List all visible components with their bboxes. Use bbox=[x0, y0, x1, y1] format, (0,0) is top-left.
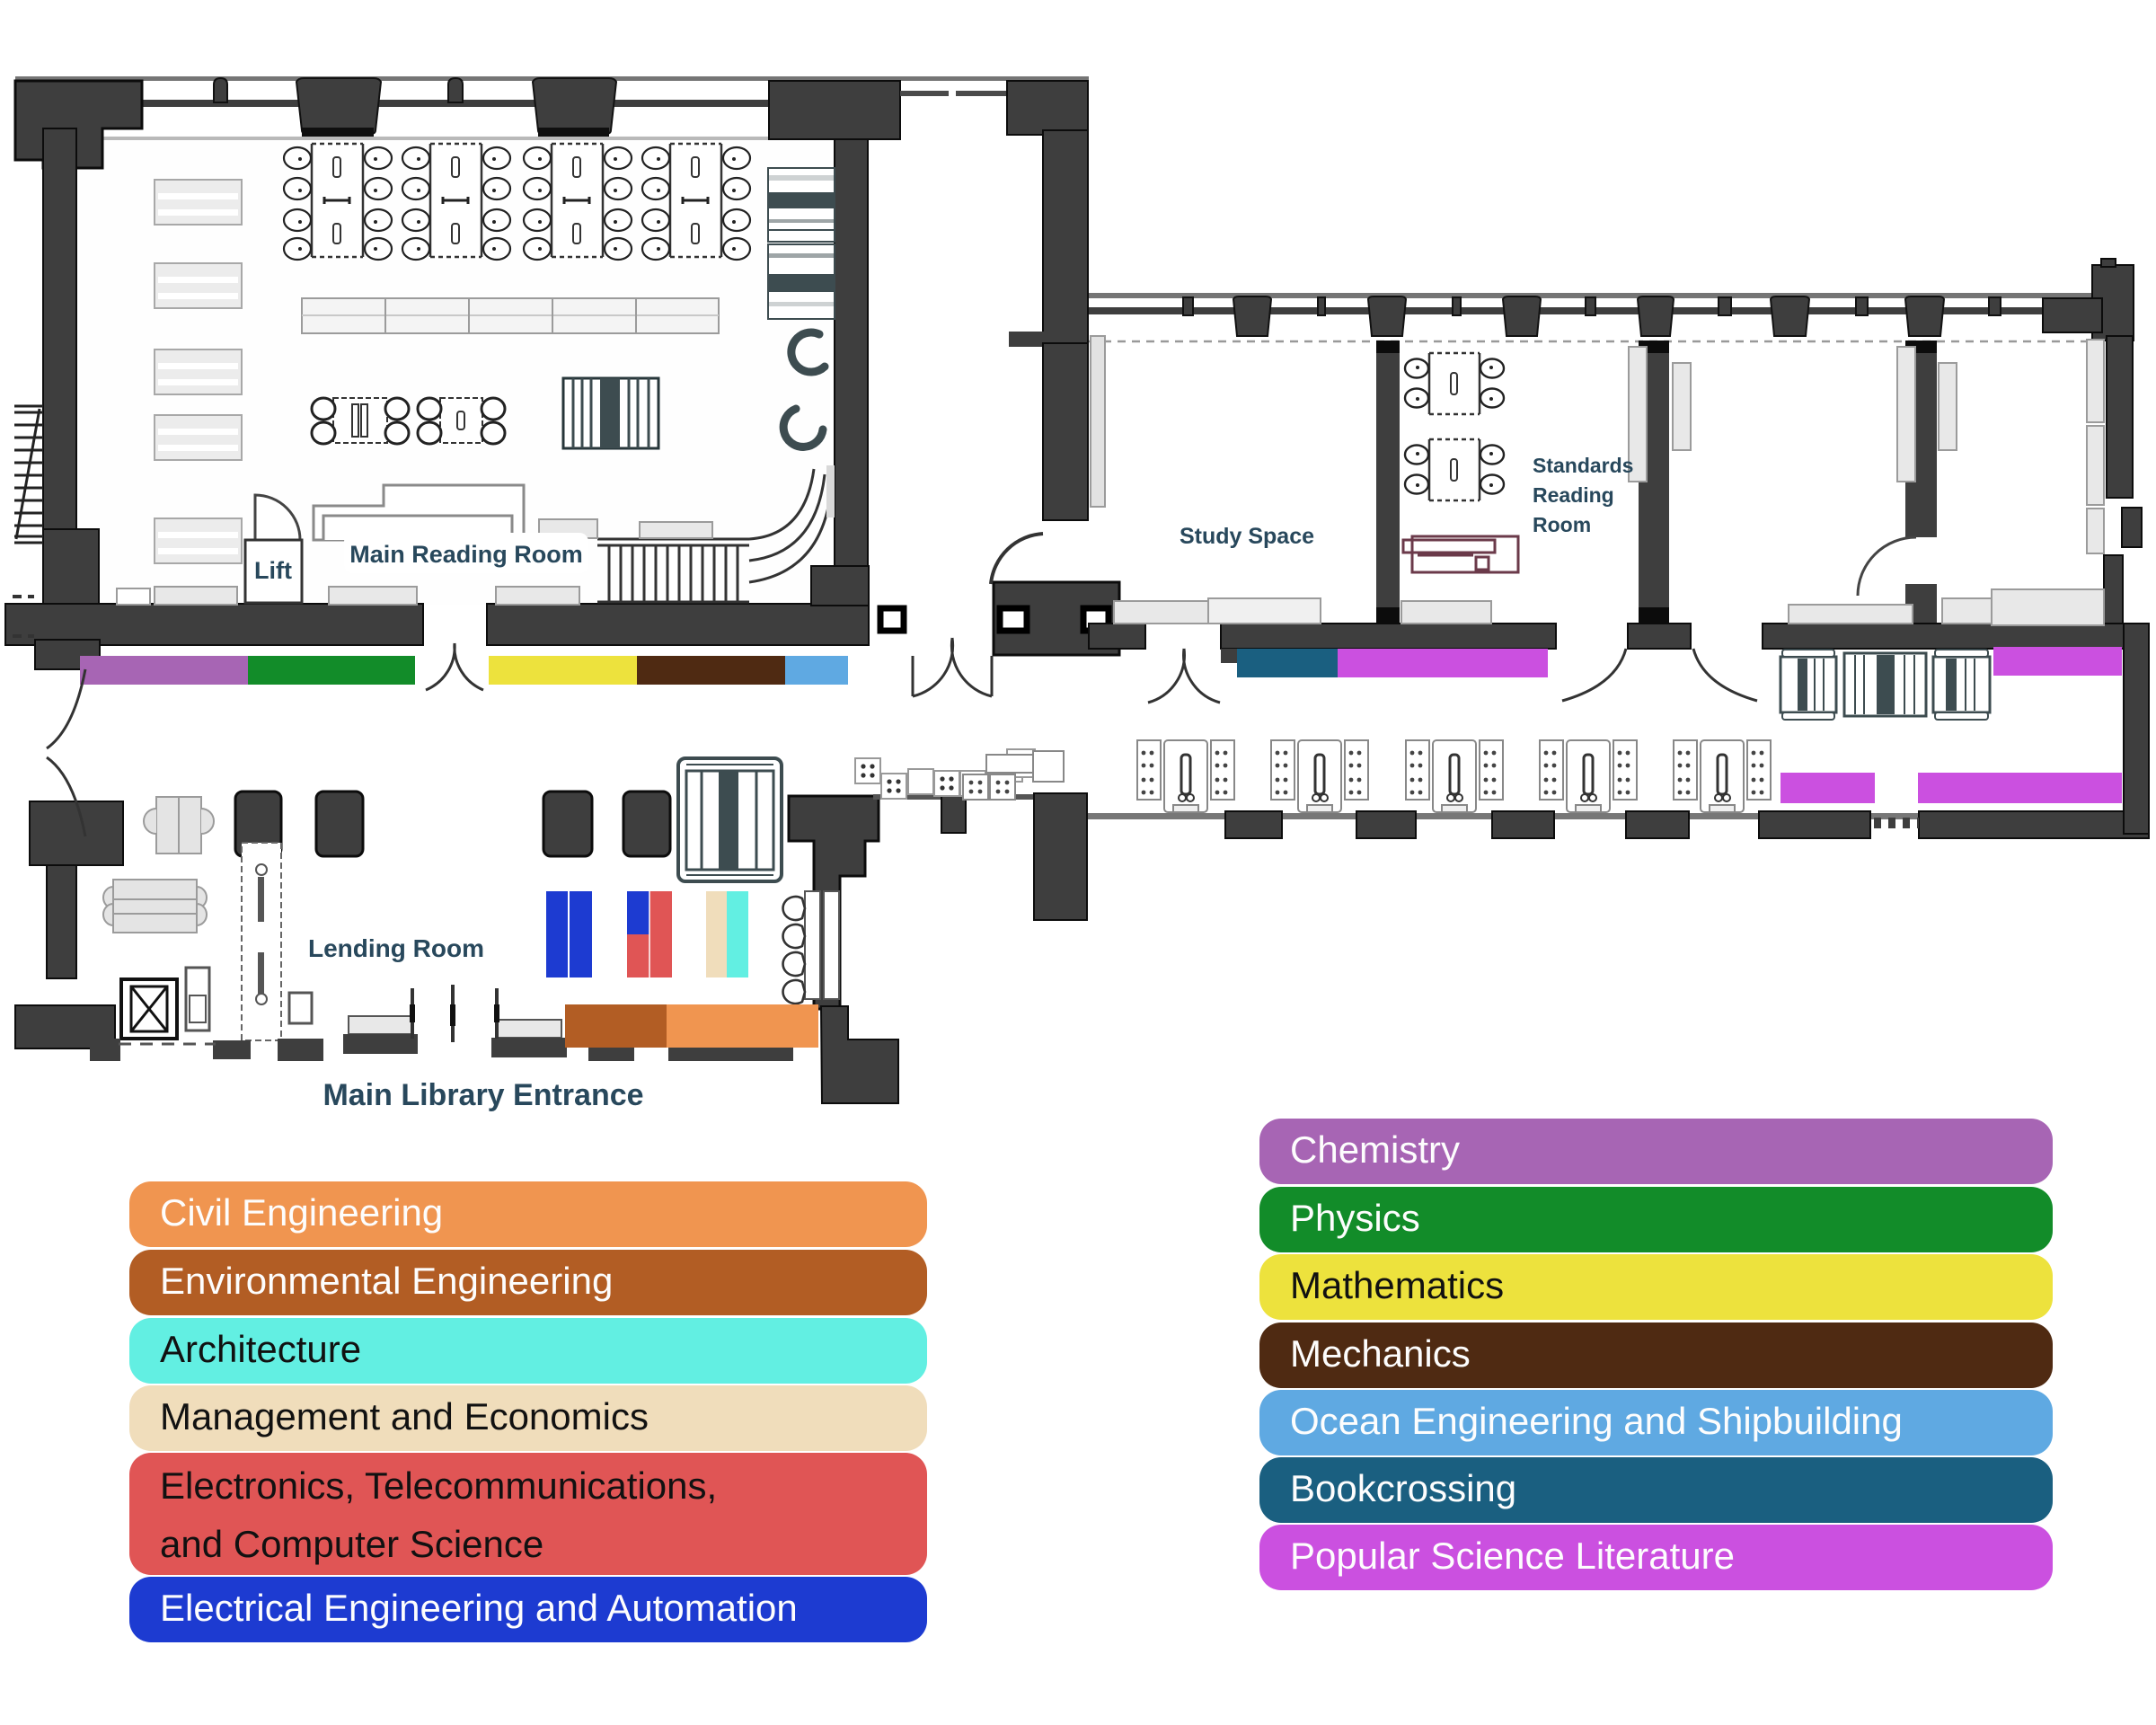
svg-text:Room: Room bbox=[1533, 513, 1591, 536]
svg-text:Main Reading Room: Main Reading Room bbox=[349, 541, 583, 568]
svg-text:Management and Economics: Management and Economics bbox=[160, 1395, 649, 1437]
svg-text:Study Space: Study Space bbox=[1180, 524, 1314, 549]
svg-text:Standards: Standards bbox=[1533, 454, 1633, 477]
svg-text:Electrical Engineering and Aut: Electrical Engineering and Automation bbox=[160, 1587, 798, 1629]
svg-text:Lift: Lift bbox=[254, 557, 292, 584]
svg-text:Mathematics: Mathematics bbox=[1290, 1264, 1504, 1306]
svg-text:and Computer Science: and Computer Science bbox=[160, 1523, 543, 1565]
svg-text:Architecture: Architecture bbox=[160, 1328, 361, 1370]
svg-text:Mechanics: Mechanics bbox=[1290, 1332, 1471, 1375]
svg-text:Environmental Engineering: Environmental Engineering bbox=[160, 1260, 613, 1302]
svg-text:Civil Engineering: Civil Engineering bbox=[160, 1191, 443, 1234]
svg-text:Popular Science Literature: Popular Science Literature bbox=[1290, 1535, 1735, 1577]
svg-text:Electronics, Telecommunication: Electronics, Telecommunications, bbox=[160, 1464, 717, 1507]
svg-text:Chemistry: Chemistry bbox=[1290, 1128, 1460, 1171]
svg-text:Lending Room: Lending Room bbox=[308, 934, 484, 962]
svg-text:Bookcrossing: Bookcrossing bbox=[1290, 1467, 1516, 1509]
svg-text:Main Library Entrance: Main Library Entrance bbox=[323, 1078, 643, 1112]
svg-text:Ocean Engineering and Shipbuil: Ocean Engineering and Shipbuilding bbox=[1290, 1400, 1903, 1442]
svg-text:Physics: Physics bbox=[1290, 1197, 1420, 1239]
svg-text:Reading: Reading bbox=[1533, 483, 1614, 507]
